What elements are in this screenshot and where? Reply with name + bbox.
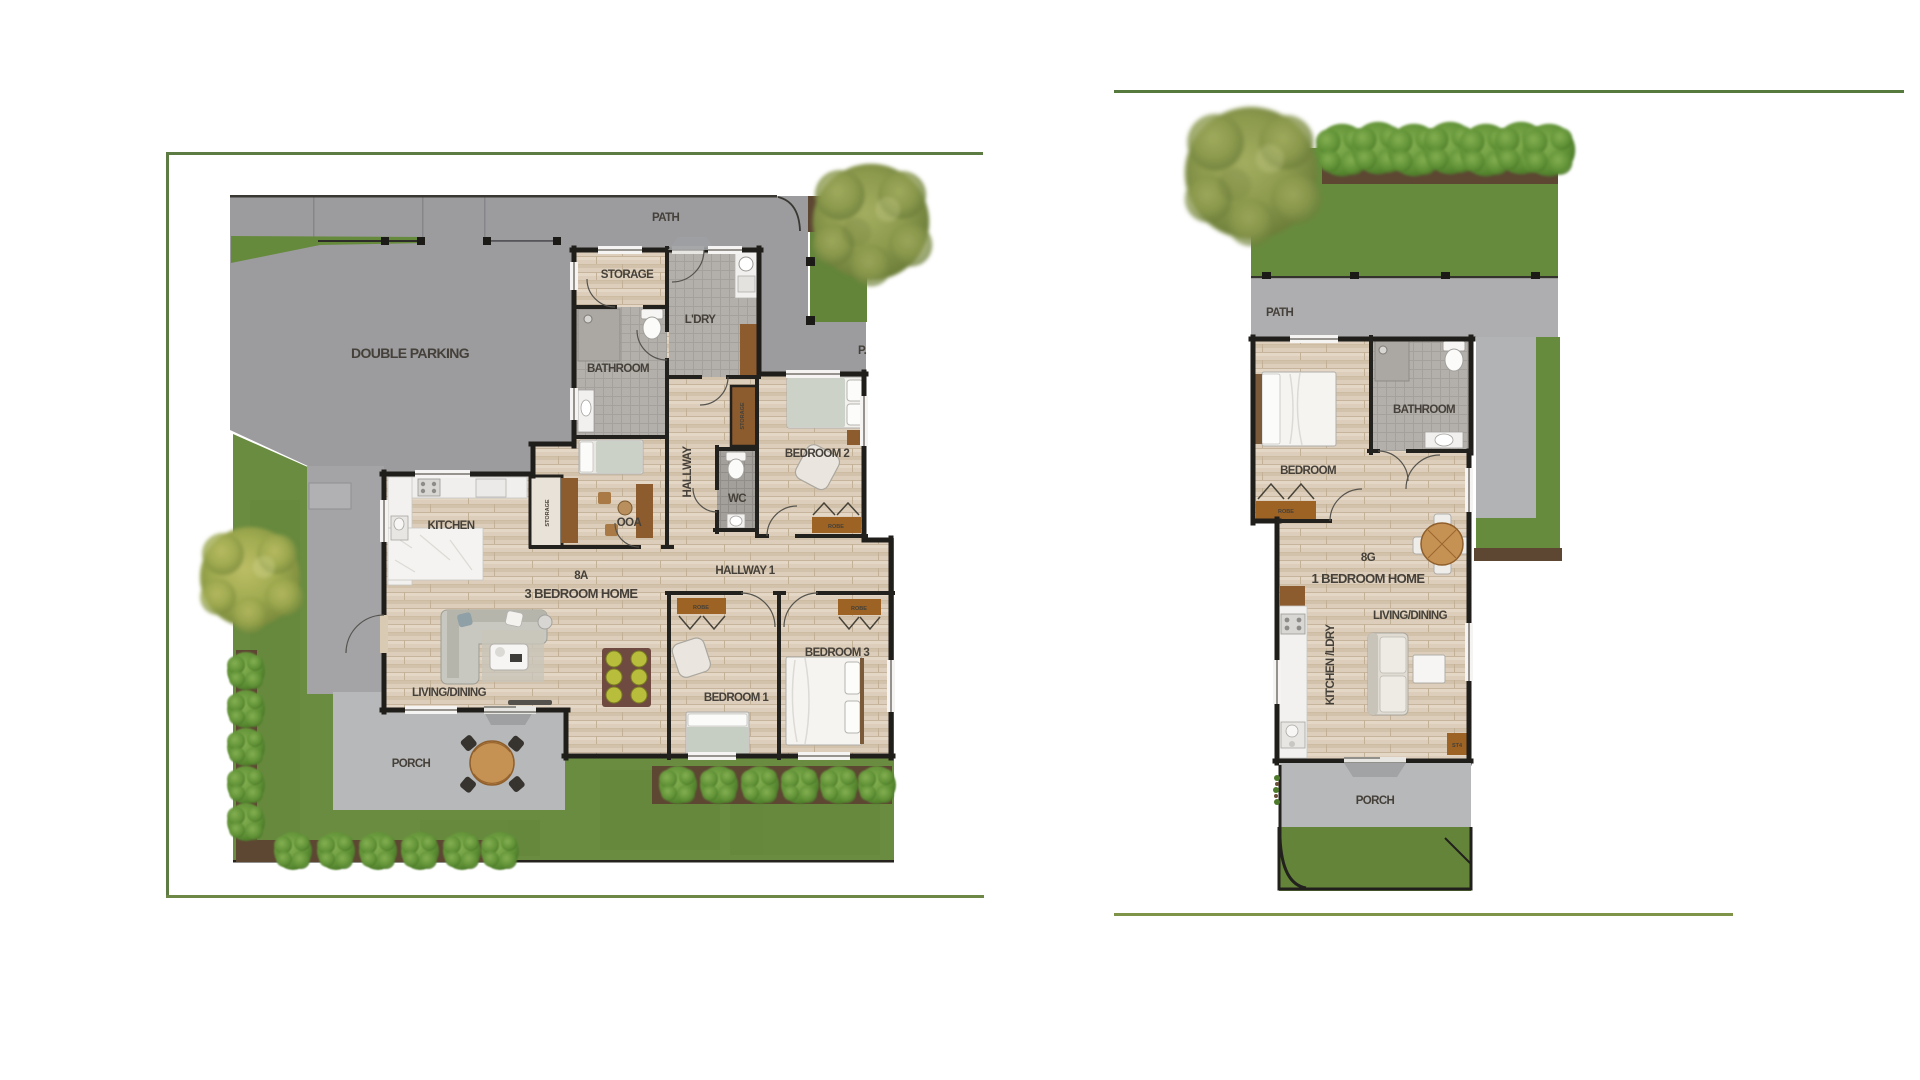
svg-text:8A: 8A — [574, 570, 588, 582]
svg-text:LIVING/DINING: LIVING/DINING — [1373, 610, 1448, 622]
svg-text:PATH: PATH — [652, 212, 679, 224]
svg-text:LIVING/DINING: LIVING/DINING — [412, 687, 487, 699]
svg-text:BEDROOM 2: BEDROOM 2 — [785, 448, 849, 460]
svg-text:PORCH: PORCH — [392, 758, 431, 770]
svg-text:P.: P. — [858, 345, 867, 357]
svg-text:HALLWAY: HALLWAY — [682, 446, 694, 498]
svg-text:ROBE: ROBE — [693, 605, 709, 611]
svg-text:BATHROOM: BATHROOM — [587, 363, 649, 375]
svg-text:OOA: OOA — [617, 517, 642, 529]
svg-text:ROBE: ROBE — [1278, 509, 1294, 515]
svg-text:PORCH: PORCH — [1356, 795, 1395, 807]
svg-text:L'DRY: L'DRY — [685, 314, 717, 326]
svg-text:1 BEDROOM HOME: 1 BEDROOM HOME — [1312, 571, 1426, 586]
svg-text:DOUBLE PARKING: DOUBLE PARKING — [351, 345, 470, 361]
svg-text:STORAGE: STORAGE — [545, 499, 551, 526]
svg-text:KITCHEN /LDRY: KITCHEN /LDRY — [1325, 624, 1337, 706]
svg-text:3 BEDROOM HOME: 3 BEDROOM HOME — [525, 586, 639, 601]
svg-text:KITCHEN: KITCHEN — [428, 520, 475, 532]
svg-text:STORAGE: STORAGE — [601, 269, 654, 281]
svg-text:BEDROOM 1: BEDROOM 1 — [704, 692, 769, 704]
svg-text:BATHROOM: BATHROOM — [1393, 404, 1455, 416]
svg-text:8G: 8G — [1361, 552, 1376, 564]
svg-text:BEDROOM 3: BEDROOM 3 — [805, 647, 869, 659]
svg-text:ST4: ST4 — [1452, 743, 1463, 749]
svg-text:STORAGE: STORAGE — [740, 402, 746, 429]
svg-text:WC: WC — [728, 493, 746, 505]
svg-text:ROBE: ROBE — [828, 524, 844, 530]
svg-text:ROBE: ROBE — [851, 606, 867, 612]
svg-text:PATH: PATH — [1266, 307, 1293, 319]
svg-text:HALLWAY 1: HALLWAY 1 — [715, 565, 775, 577]
svg-text:BEDROOM: BEDROOM — [1280, 465, 1336, 477]
